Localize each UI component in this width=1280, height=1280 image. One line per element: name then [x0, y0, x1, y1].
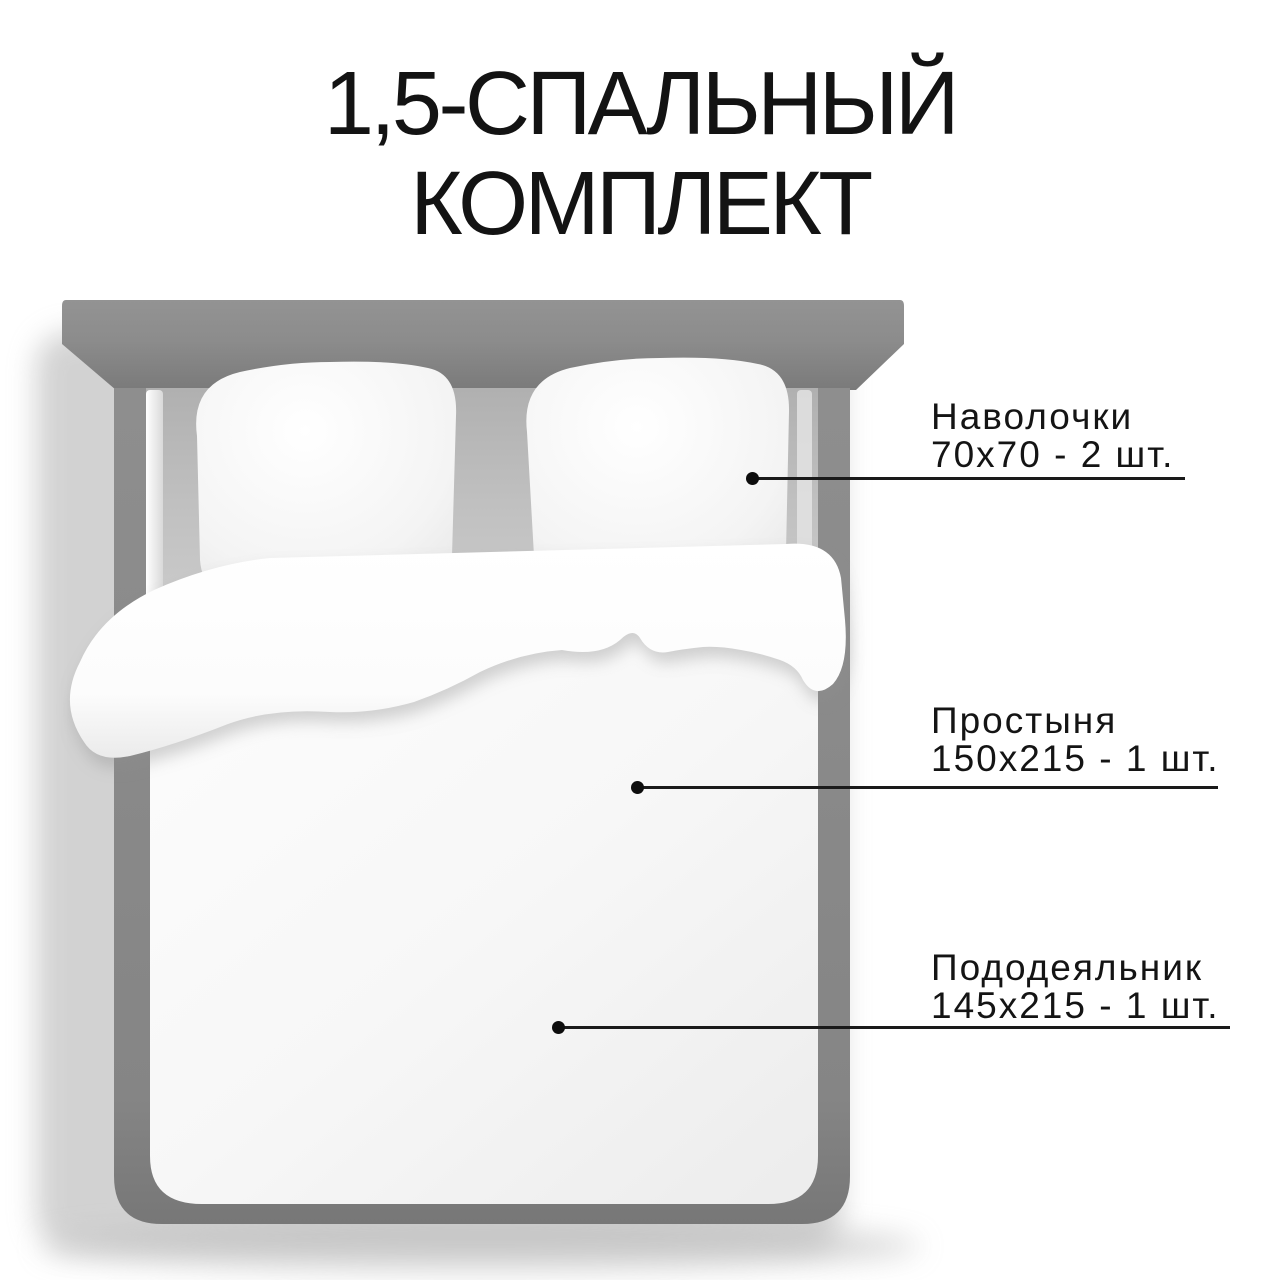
callout-pillowcases-text: Наволочки 70х70 - 2 шт.	[931, 398, 1174, 474]
callout-pillowcases-size: 70х70 - 2 шт.	[931, 436, 1174, 474]
bed-illustration	[0, 0, 1280, 1280]
callout-duvet-cover-dot	[552, 1021, 565, 1034]
callout-sheet-size: 150х215 - 1 шт.	[931, 740, 1220, 778]
callout-pillowcases-dot	[746, 472, 759, 485]
callout-duvet-cover-size: 145х215 - 1 шт.	[931, 987, 1220, 1025]
callout-sheet-label: Простыня	[931, 702, 1220, 740]
infographic-page: 1,5-СПАЛЬНЫЙ КОМПЛЕКТ	[0, 0, 1280, 1280]
callout-sheet-dot	[631, 781, 644, 794]
callout-sheet-text: Простыня 150х215 - 1 шт.	[931, 702, 1220, 778]
callout-duvet-cover-text: Пододеяльник 145х215 - 1 шт.	[931, 949, 1220, 1025]
callout-pillowcases-label: Наволочки	[931, 398, 1174, 436]
callout-duvet-cover-label: Пододеяльник	[931, 949, 1220, 987]
callout-sheet-line	[638, 786, 1218, 789]
callout-pillowcases-line	[753, 477, 1185, 480]
callout-duvet-cover-line	[559, 1026, 1230, 1029]
